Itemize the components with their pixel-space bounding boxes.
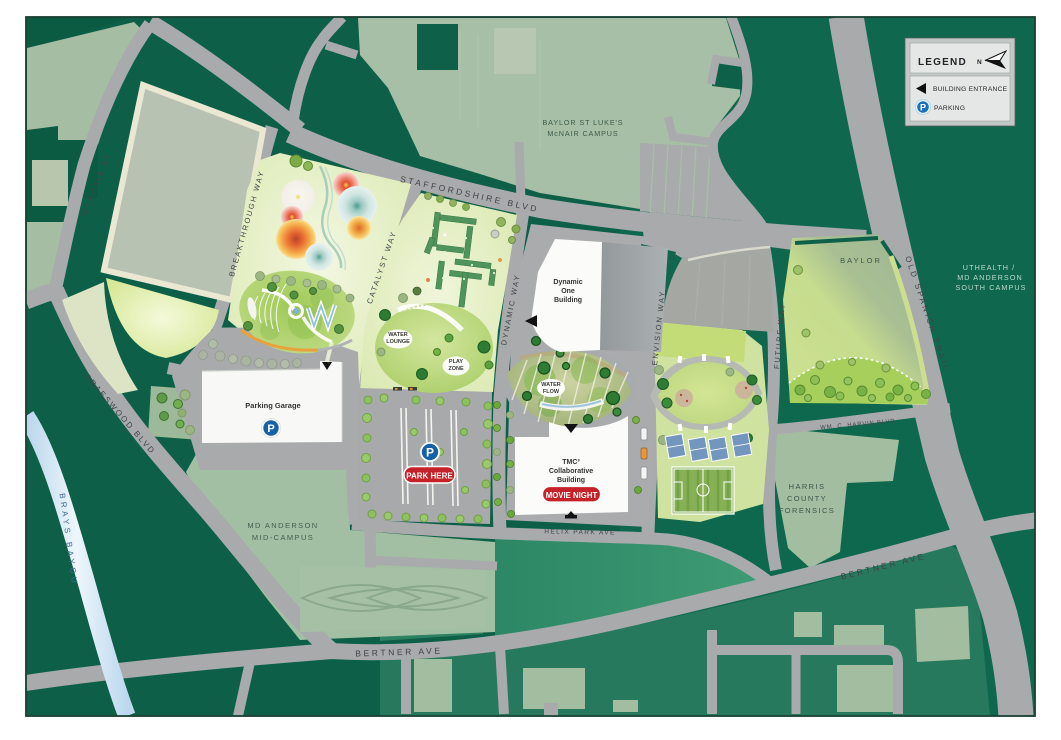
svg-text:COUNTY: COUNTY <box>787 494 827 503</box>
svg-text:MOVIE NIGHT: MOVIE NIGHT <box>546 491 598 500</box>
svg-text:LOUNGE: LOUNGE <box>386 339 410 345</box>
svg-text:P: P <box>426 446 434 460</box>
svg-text:UTHEALTH /: UTHEALTH / <box>963 263 1015 272</box>
svg-text:Collaborative: Collaborative <box>549 468 593 475</box>
svg-text:SOUTH CAMPUS: SOUTH CAMPUS <box>955 283 1026 292</box>
svg-text:PARK HERE: PARK HERE <box>406 472 453 481</box>
svg-text:Building: Building <box>557 477 585 484</box>
svg-text:TMC³: TMC³ <box>562 459 580 466</box>
svg-text:FORENSICS: FORENSICS <box>779 506 835 515</box>
svg-text:ZONE: ZONE <box>448 366 464 372</box>
svg-text:MD ANDERSON: MD ANDERSON <box>957 273 1023 282</box>
svg-text:WATER: WATER <box>388 332 407 338</box>
svg-text:McNAIR CAMPUS: McNAIR CAMPUS <box>547 129 618 138</box>
svg-text:PLAY: PLAY <box>449 359 463 365</box>
svg-text:MD ANDERSON: MD ANDERSON <box>247 521 318 530</box>
svg-text:BAYLOR: BAYLOR <box>840 256 882 265</box>
svg-text:P: P <box>920 103 926 113</box>
svg-text:N: N <box>977 59 982 66</box>
svg-text:FLOW: FLOW <box>543 389 560 395</box>
svg-text:HARRIS: HARRIS <box>789 482 826 491</box>
svg-text:Dynamic: Dynamic <box>553 279 582 286</box>
svg-text:WATER: WATER <box>541 382 560 388</box>
svg-text:LEGEND: LEGEND <box>918 57 967 68</box>
svg-text:Building: Building <box>554 297 582 304</box>
svg-text:One: One <box>561 288 575 295</box>
svg-text:MID-CAMPUS: MID-CAMPUS <box>252 533 314 542</box>
svg-text:P: P <box>267 423 274 435</box>
svg-text:BAYLOR ST LUKE'S: BAYLOR ST LUKE'S <box>542 118 623 127</box>
svg-text:BUILDING ENTRANCE: BUILDING ENTRANCE <box>933 86 1008 93</box>
svg-text:PARKING: PARKING <box>934 105 965 112</box>
svg-text:HELIX PARK AVE: HELIX PARK AVE <box>544 528 616 536</box>
svg-text:Parking Garage: Parking Garage <box>245 401 300 410</box>
